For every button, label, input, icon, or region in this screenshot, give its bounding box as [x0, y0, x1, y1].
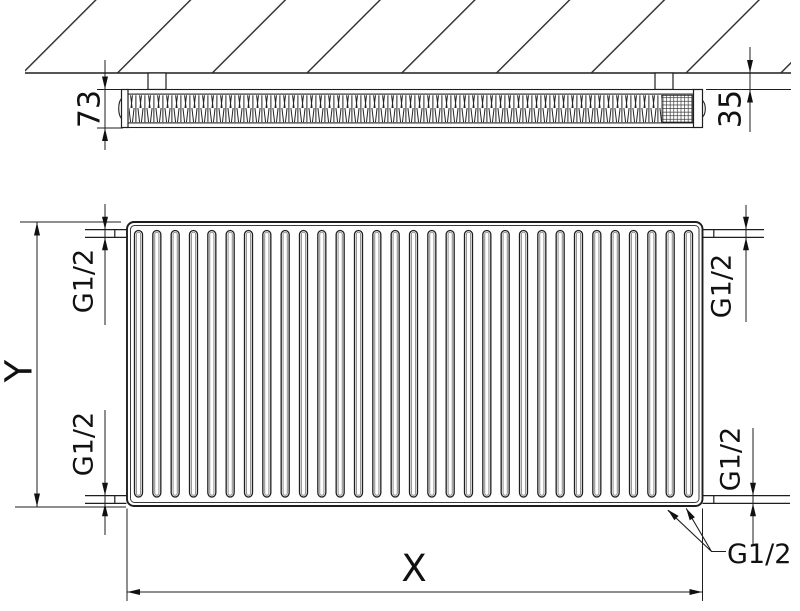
- arrow-right-icon: [690, 589, 703, 595]
- panel-channel: [593, 231, 601, 498]
- panel-channel: [520, 231, 528, 498]
- mounting-bracket-right: [655, 73, 673, 90]
- dim-height: Y: [0, 222, 126, 507]
- panel-channel: [135, 231, 143, 498]
- connection-stub-bottom-left: [85, 496, 127, 504]
- height-label: Y: [0, 359, 41, 383]
- top-view: [25, 0, 791, 128]
- panel-channel: [373, 231, 381, 498]
- panel-channel: [391, 231, 399, 498]
- arrow-down-icon: [34, 494, 40, 507]
- end-cap-left: [122, 90, 129, 128]
- dim-conn-top-right: G1/2: [707, 205, 750, 322]
- panel-channel: [446, 231, 454, 498]
- depth-label: 73: [73, 90, 108, 128]
- panel-channel: [666, 231, 674, 498]
- arrow-down-icon: [743, 217, 749, 230]
- arrow-up-icon: [34, 222, 40, 235]
- radiator-bottom-plate: [127, 123, 694, 128]
- panel-channel: [300, 231, 308, 498]
- arrow-down-icon: [102, 77, 108, 90]
- arrow-left-icon: [127, 589, 140, 595]
- panel-channel: [171, 231, 179, 498]
- panel-channel: [685, 231, 693, 498]
- panel-channel: [501, 231, 509, 498]
- panel-channel: [465, 231, 473, 498]
- panel-channel: [483, 231, 491, 498]
- panel-channel: [355, 231, 363, 498]
- connection-label-bottom-left: G1/2: [69, 412, 100, 476]
- arrow-up-icon: [743, 238, 749, 251]
- drawing-svg: 73 35 Y G1/2 G1/2: [0, 0, 800, 611]
- arrow-down-icon: [750, 483, 756, 496]
- radiator-technical-drawing: 73 35 Y G1/2 G1/2: [0, 0, 800, 611]
- wall-gap-label: 35: [714, 90, 749, 128]
- panel-channel: [190, 231, 198, 498]
- panel-channel: [263, 231, 271, 498]
- arrow-down-icon: [102, 483, 108, 496]
- dim-conn-bottom-right: G1/2: [716, 427, 757, 545]
- panel-channel: [153, 231, 161, 498]
- panel-channel: [630, 231, 638, 498]
- panel-channel: [318, 231, 326, 498]
- panel-channel: [245, 231, 253, 498]
- panel-channel: [410, 231, 418, 498]
- front-view: [85, 222, 790, 506]
- connection-stub-bottom-right: [703, 496, 791, 504]
- panel-channel: [281, 231, 289, 498]
- panel-channel: [336, 231, 344, 498]
- connection-label-bottom-right: G1/2: [716, 427, 747, 491]
- arrow-up-icon: [102, 128, 108, 141]
- panel-channel: [575, 231, 583, 498]
- panel-channel: [208, 231, 216, 498]
- arrow-up-icon: [750, 504, 756, 517]
- panel-channel: [428, 231, 436, 498]
- dim-width: X: [127, 509, 703, 602]
- mounting-bracket-left: [148, 73, 166, 90]
- valve-connections-leader: G1/2: [668, 508, 792, 570]
- panel-channel: [538, 231, 546, 498]
- radiator-top-plate: [127, 90, 694, 95]
- end-cap-right: [694, 90, 703, 128]
- panel-channel: [556, 231, 564, 498]
- connection-label-bottom-valve: G1/2: [727, 539, 791, 570]
- connection-stub-top-left: [85, 230, 127, 238]
- connection-label-top-right: G1/2: [707, 254, 738, 318]
- convector-fins: [129, 95, 662, 122]
- arrow-up-left-icon: [686, 508, 695, 520]
- panel-channel: [611, 231, 619, 498]
- valve-section: [662, 95, 693, 122]
- arrow-up-icon: [102, 504, 108, 517]
- panel-channel: [648, 231, 656, 498]
- arrow-down-icon: [102, 217, 108, 230]
- arrow-up-icon: [102, 238, 108, 251]
- wall-hatch: [25, 0, 791, 72]
- width-label: X: [401, 547, 426, 590]
- connection-stub-top-right: [703, 230, 765, 238]
- panel-channel: [226, 231, 234, 498]
- dim-conn-bottom-left: G1/2: [69, 410, 109, 535]
- connection-label-top-left: G1/2: [69, 249, 100, 313]
